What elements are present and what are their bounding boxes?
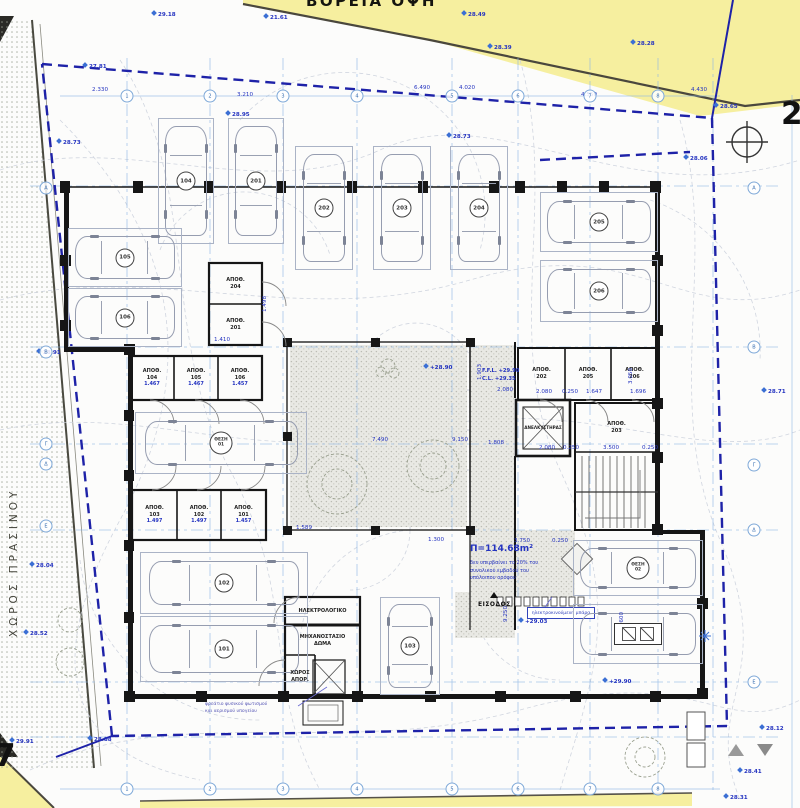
stall-number-text: 105: [119, 255, 130, 261]
car-wheel: [457, 236, 460, 245]
cl-level-label: C.L. +29.35: [482, 376, 516, 382]
car-wheel: [302, 236, 305, 245]
car-window: [240, 155, 273, 156]
car-wheel: [421, 171, 424, 180]
shaft-note-line: και αερισμού υπογείου: [205, 709, 267, 716]
room-label: ΑΠΟΘ.: [532, 367, 550, 374]
parking-stall: 106: [68, 288, 182, 347]
spot-elevation: 28.31: [724, 794, 748, 801]
shaft-note-line: φρεάτιο φυσικού φωτισμού: [205, 702, 267, 709]
parking-stall: ΘΕΣΗ01: [135, 412, 307, 474]
ramp-note-line: υπόλοιπου ορόφου: [470, 575, 538, 583]
stall-number-text: 205: [593, 219, 604, 225]
car-wheel: [498, 171, 501, 180]
grid-bubble: 2: [204, 783, 217, 796]
stall-number: ΘΕΣΗ01: [210, 432, 233, 455]
dim-label: 3.050: [628, 368, 634, 384]
spot-elevation: +29.03: [519, 618, 547, 625]
dim-label: 1.696: [630, 389, 646, 395]
room-label: 205: [583, 374, 593, 381]
dim-label: 1.410: [214, 337, 230, 343]
room: ΑΠΟΘ.1021.497: [177, 490, 221, 540]
spot-elevation: 28.06: [684, 155, 708, 162]
spot-elevation: 28.88: [88, 736, 112, 743]
car-wheel: [267, 560, 276, 563]
car-wheel: [205, 210, 208, 219]
slope-arrow-down-icon: [757, 744, 773, 756]
parking-stall: 101: [140, 616, 308, 682]
car-wheel: [172, 603, 181, 606]
grid-bubble: 3: [277, 90, 290, 103]
car-wheel: [563, 200, 572, 203]
grid-bubble: Δ: [748, 524, 761, 537]
car-wheel: [598, 612, 607, 615]
grid-bubble: Γ: [40, 438, 53, 451]
dim-label: 4.430: [691, 87, 707, 93]
parking-stall: 202: [295, 146, 353, 270]
dim-label: 3.500: [603, 445, 619, 451]
room-label: 102: [194, 512, 204, 519]
stall-number-sub: 01: [218, 443, 224, 448]
ffl-level-label: F.F.L. +29.90: [482, 368, 519, 374]
grid-bubble: Ε: [40, 520, 53, 533]
car-wheel: [151, 235, 160, 238]
grid-bubble: Δ: [40, 458, 53, 471]
stall-number-text: 202: [318, 205, 329, 211]
grid-bubble: Β: [748, 341, 761, 354]
car-wheel: [265, 420, 274, 423]
car-wheel: [151, 337, 160, 340]
car-wheel: [387, 666, 390, 675]
room-dim-label: 1.457: [232, 381, 248, 388]
car-window: [385, 231, 419, 232]
stall-number: 203: [393, 199, 412, 218]
room-label: 106: [235, 375, 245, 382]
dim-label: 4.020: [459, 85, 475, 91]
dim-label: 0.250: [552, 538, 568, 544]
car-window: [307, 183, 341, 184]
car-window: [240, 205, 273, 206]
parking-stall: 104: [158, 118, 214, 244]
car-wheel: [267, 671, 276, 674]
car-wheel: [302, 171, 305, 180]
spot-elevation: 28.39: [488, 44, 512, 51]
car-wheel: [234, 144, 237, 153]
grid-bubble: Α: [40, 182, 53, 195]
stall-number: 202: [315, 199, 334, 218]
badge-pictogram-icon: [640, 627, 654, 641]
room: ΑΠΟΘ.204: [209, 264, 262, 304]
stall-number: 105: [116, 248, 135, 267]
room: ΑΠΟΘ.1011.457: [221, 490, 266, 540]
room-label: 101: [238, 512, 248, 519]
room-dim-label: 1.497: [191, 518, 207, 525]
badge-pictogram-icon: [622, 627, 636, 641]
spot-elevation: 28.95: [226, 111, 250, 118]
car-wheel: [172, 671, 181, 674]
spot-elevation: 28.52: [24, 630, 48, 637]
grid-bubble: 8: [652, 783, 665, 796]
room-label: ΗΛΕΚΤΡΟΛΟΓΙΚΟ: [299, 608, 347, 615]
car-wheel: [626, 268, 635, 271]
car-wheel: [626, 311, 635, 314]
dim-label: 9.150: [452, 437, 468, 443]
room: ΧΩΡΟΣΑΠΟΡ.: [286, 658, 314, 696]
car-wheel: [90, 337, 99, 340]
grid-bubble: Γ: [748, 459, 761, 472]
room-label: 202: [536, 374, 546, 381]
room-dim-label: 1.497: [147, 518, 163, 525]
parking-stall: 201: [228, 118, 284, 244]
staircase: [575, 456, 658, 528]
room-label: ΑΠΟΘ.: [187, 368, 205, 375]
dim-label: 9.250: [503, 606, 509, 622]
car-window: [256, 565, 257, 601]
crosshair-icon: [726, 121, 768, 163]
grid-bubble: 6: [512, 783, 525, 796]
grid-bubble: 1: [121, 90, 134, 103]
room-label: ΑΠΟΘ.: [143, 368, 161, 375]
spot-elevation: 28.28: [631, 40, 655, 47]
room: ΜΗΧΑΝΟΣΤΑΣΙΟΔΩΜΑ: [287, 627, 358, 655]
car-wheel: [430, 666, 433, 675]
stall-number: 205: [590, 213, 609, 232]
spot-elevation: 28.71: [762, 388, 786, 395]
grid-bubble: 4: [351, 783, 364, 796]
car-window: [611, 617, 612, 651]
car-wheel: [669, 612, 678, 615]
car-wheel: [343, 236, 346, 245]
parking-stall: 206: [540, 260, 658, 322]
car-window: [392, 626, 427, 627]
spot-elevation: 29.91: [10, 738, 34, 745]
room-label: ΔΩΜΑ: [314, 641, 331, 648]
dim-label: 1.808: [488, 440, 504, 446]
stall-number: 106: [116, 308, 135, 327]
car-wheel: [387, 617, 390, 626]
car-window: [622, 273, 623, 309]
car-wheel: [563, 311, 572, 314]
room-label: ΑΠΟΘ.: [226, 318, 244, 325]
room-label: 201: [230, 325, 240, 332]
grid-bubble: 6: [512, 90, 525, 103]
grid-bubble: 7: [584, 783, 597, 796]
sheet-number-right: 2: [781, 96, 800, 132]
car-wheel: [598, 653, 607, 656]
stall-number: ΘΕΣΗ02: [627, 557, 650, 580]
stall-badge: [614, 623, 662, 645]
room-label: ΑΝΕΛΚΥΣΤΗΡΑΣ: [524, 425, 562, 431]
room: ΑΠΟΘ.1041.467: [130, 356, 174, 400]
grid-bubble: 1: [121, 783, 134, 796]
green-strip: [0, 20, 101, 768]
parking-stall: 102: [140, 552, 308, 614]
car-wheel: [168, 463, 177, 466]
grid-bubble: 7: [584, 90, 597, 103]
car-wheel: [151, 295, 160, 298]
spot-elevation: 27.81: [83, 63, 107, 70]
car-wheel: [168, 420, 177, 423]
room: ΑΠΟΘ.1031.497: [132, 490, 177, 540]
car-window: [462, 183, 496, 184]
car-window: [147, 241, 148, 275]
car-wheel: [164, 210, 167, 219]
room-label: ΜΗΧΑΝΟΣΤΑΣΙΟ: [300, 634, 346, 641]
dim-label: 2.080: [539, 445, 555, 451]
room-label: ΑΠΟΘ.: [145, 505, 163, 512]
parking-stall: ΘΕΣΗ02: [573, 540, 703, 596]
spot-elevation: 28.65: [714, 103, 738, 110]
north-facade-label: ΒΟΡΕΙΑ ΟΨΗ: [306, 0, 437, 10]
stall-number-text: 102: [218, 580, 229, 586]
car-wheel: [421, 236, 424, 245]
grid-bubble: 5: [446, 90, 459, 103]
car-wheel: [172, 560, 181, 563]
car-wheel: [275, 210, 278, 219]
green-space-label: ΧΩΡΟΣ ΠΡΑΣΙΝΟΥ: [8, 425, 20, 637]
car-window: [256, 630, 257, 668]
entrance-arrow-icon: [490, 592, 498, 598]
grid-bubble: Ε: [748, 676, 761, 689]
car-window: [147, 301, 148, 335]
car-window: [170, 155, 203, 156]
stall-number: 104: [177, 172, 196, 191]
parking-stall: 103: [380, 597, 440, 695]
room-dim-label: 1.457: [236, 518, 252, 525]
parking-stall: [573, 604, 703, 664]
car-wheel: [172, 624, 181, 627]
car-wheel: [626, 200, 635, 203]
ramp-area-note: δεν υπερβαίνει το 20% του συνολικού εμβα…: [470, 560, 538, 583]
spot-elevation: +29.90: [603, 678, 631, 685]
ramp-note-line: συνολικού εμβαδού του: [470, 568, 538, 576]
car-wheel: [430, 617, 433, 626]
parking-stall: 204: [450, 146, 508, 270]
dim-label: 1.647: [586, 389, 602, 395]
room-label: 104: [147, 375, 157, 382]
stall-number: 201: [247, 172, 266, 191]
car-window: [307, 231, 341, 232]
car-window: [462, 231, 496, 232]
room-label: ΑΠΟΘ.: [579, 367, 597, 374]
car-window: [385, 183, 419, 184]
grid-bubble: 3: [277, 783, 290, 796]
spot-elevation: 28.73: [447, 133, 471, 140]
car-wheel: [626, 241, 635, 244]
car-window: [170, 205, 203, 206]
room-label: ΧΩΡΟΣ: [290, 670, 309, 677]
car-window: [611, 552, 612, 584]
room-label: 203: [611, 428, 621, 435]
car-wheel: [90, 277, 99, 280]
grid-bubble: Α: [748, 182, 761, 195]
car-wheel: [598, 586, 607, 589]
parking-stall: 205: [540, 192, 658, 252]
dim-label: 3.210: [237, 92, 253, 98]
car-wheel: [164, 144, 167, 153]
spot-elevation: 28.41: [738, 768, 762, 775]
car-wheel: [90, 235, 99, 238]
grid-bubble: 5: [446, 783, 459, 796]
stall-number: 102: [215, 574, 234, 593]
dim-label: 2.080: [536, 389, 552, 395]
shaft-note: φρεάτιο φυσικού φωτισμού και αερισμού υπ…: [205, 702, 267, 716]
car-wheel: [498, 236, 501, 245]
car-wheel: [380, 236, 383, 245]
car-wheel: [380, 171, 383, 180]
room: ΑΠΟΘ.1061.457: [218, 356, 262, 400]
car-wheel: [669, 547, 678, 550]
floor-plan-canvas: ΒΟΡΕΙΑ ΟΨΗ 2 7 ΧΩΡΟΣ ΠΡΑΣΙΝΟΥ Π=114.68m²…: [0, 0, 800, 808]
room-dim-label: 1.467: [188, 381, 204, 388]
dim-label: 1.498: [262, 296, 268, 312]
car-window: [254, 425, 255, 461]
spot-elevation: +28.90: [424, 364, 452, 371]
car-wheel: [343, 171, 346, 180]
grid-bubble: 8: [652, 90, 665, 103]
dim-label: 2.330: [92, 87, 108, 93]
room-label: 103: [149, 512, 159, 519]
car-wheel: [275, 144, 278, 153]
car-window: [189, 630, 190, 668]
dim-label: 1.589: [296, 525, 312, 531]
car-wheel: [265, 463, 274, 466]
stall-number-text: 203: [396, 205, 407, 211]
dim-label: 0.250: [562, 389, 578, 395]
room-label: 204: [230, 284, 240, 291]
stall-number-text: 204: [473, 205, 484, 211]
spot-elevation: 21.61: [264, 14, 288, 21]
room-label: ΑΠΟΘ.: [607, 421, 625, 428]
car-window: [392, 664, 427, 665]
stall-number-text: 101: [218, 646, 229, 652]
planters: [687, 712, 705, 767]
stall-number: 101: [215, 640, 234, 659]
room-label: 105: [191, 375, 201, 382]
dim-label: 7.490: [372, 437, 388, 443]
room-label: ΑΠΟΘ.: [231, 368, 249, 375]
room-label: ΑΠΟΡ.: [291, 677, 309, 684]
car-wheel: [267, 603, 276, 606]
room-label: ΑΠΟΘ.: [190, 505, 208, 512]
room-dim-label: 1.467: [144, 381, 160, 388]
street-south: [0, 733, 692, 808]
room: ΑΠΟΘ.1051.467: [174, 356, 218, 400]
parking-stall: 203: [373, 146, 431, 270]
car-window: [101, 241, 102, 275]
car-wheel: [598, 547, 607, 550]
car-wheel: [563, 268, 572, 271]
dim-label: 1.300: [428, 537, 444, 543]
car-wheel: [90, 295, 99, 298]
dim-label: 6.490: [414, 85, 430, 91]
car-window: [622, 205, 623, 239]
spot-elevation: 28.49: [462, 11, 486, 18]
room: ΗΛΕΚΤΡΟΛΟΓΙΚΟ: [287, 599, 358, 623]
car-wheel: [267, 624, 276, 627]
car-wheel: [669, 586, 678, 589]
parking-stall: 105: [68, 228, 182, 287]
spot-elevation: 28.04: [30, 562, 54, 569]
stall-number-text: 103: [404, 643, 415, 649]
dim-label: 3.750: [514, 538, 530, 544]
car-wheel: [457, 171, 460, 180]
car-wheel: [234, 210, 237, 219]
car-window: [663, 617, 664, 651]
spot-elevation: 29.18: [152, 11, 176, 18]
stall-number: 206: [590, 282, 609, 301]
stall-number-text: 206: [593, 288, 604, 294]
slope-arrow-up-icon: [728, 744, 744, 756]
stall-number: 204: [470, 199, 489, 218]
ramp-note-line: δεν υπερβαίνει το 20% του: [470, 560, 538, 568]
grid-bubble: Β: [40, 346, 53, 359]
room-label: ΑΠΟΘ.: [226, 277, 244, 284]
car-window: [574, 273, 575, 309]
car-wheel: [563, 241, 572, 244]
grid-bubble: 4: [351, 90, 364, 103]
stall-number-text: 106: [119, 315, 130, 321]
stall-number: 103: [401, 637, 420, 656]
dim-label: 0.250: [642, 445, 658, 451]
car-wheel: [151, 277, 160, 280]
car-window: [185, 425, 186, 461]
ramp-area-label: Π=114.68m²: [470, 544, 533, 554]
dim-label: 1.903: [477, 364, 483, 380]
car-window: [189, 565, 190, 601]
spot-elevation: 28.12: [760, 725, 784, 732]
stall-number-text: 201: [250, 178, 261, 184]
car-wheel: [669, 653, 678, 656]
stall-number-sub: 02: [635, 568, 641, 573]
car-window: [663, 552, 664, 584]
car-window: [101, 301, 102, 335]
grid-bubble: 2: [204, 90, 217, 103]
dim-label: 2.080: [497, 387, 513, 393]
room-label: ΑΠΟΘ.: [234, 505, 252, 512]
dim-label: 0.250: [563, 445, 579, 451]
car-window: [574, 205, 575, 239]
car-wheel: [205, 144, 208, 153]
stall-number-text: 104: [180, 178, 191, 184]
spot-elevation: 28.73: [57, 139, 81, 146]
